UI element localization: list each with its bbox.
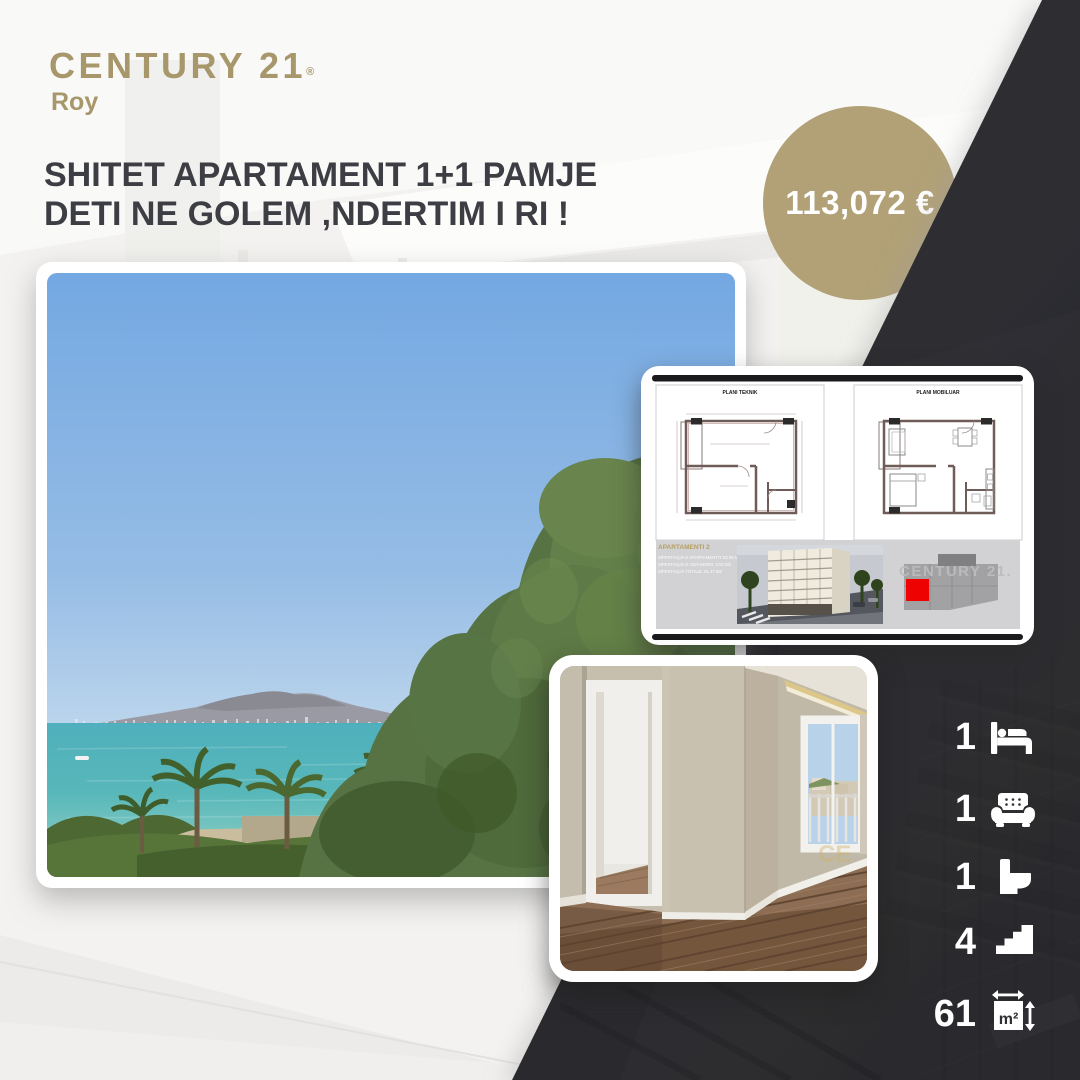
svg-text:PLANI MOBILUAR: PLANI MOBILUAR — [916, 390, 960, 396]
svg-text:PLANI TEKNIK: PLANI TEKNIK — [723, 390, 758, 396]
svg-text:CE: CE — [818, 841, 851, 868]
svg-text:SIPERFAQJA E APARTAMENTIT 53.0: SIPERFAQJA E APARTAMENTIT 53.08 M2 — [658, 555, 741, 560]
svg-text:APARTAMENTI 2: APARTAMENTI 2 — [658, 544, 710, 551]
svg-text:m²: m² — [999, 1011, 1019, 1028]
svg-text:CENTURY 21.: CENTURY 21. — [899, 563, 1012, 580]
svg-text:SIPERFAQJA TOTALE: 61.37 M2: SIPERFAQJA TOTALE: 61.37 M2 — [658, 569, 723, 574]
svg-text:SIPERFAQJA E VERANDES: 3.52 M: SIPERFAQJA E VERANDES: 3.52 M2 — [658, 562, 732, 567]
